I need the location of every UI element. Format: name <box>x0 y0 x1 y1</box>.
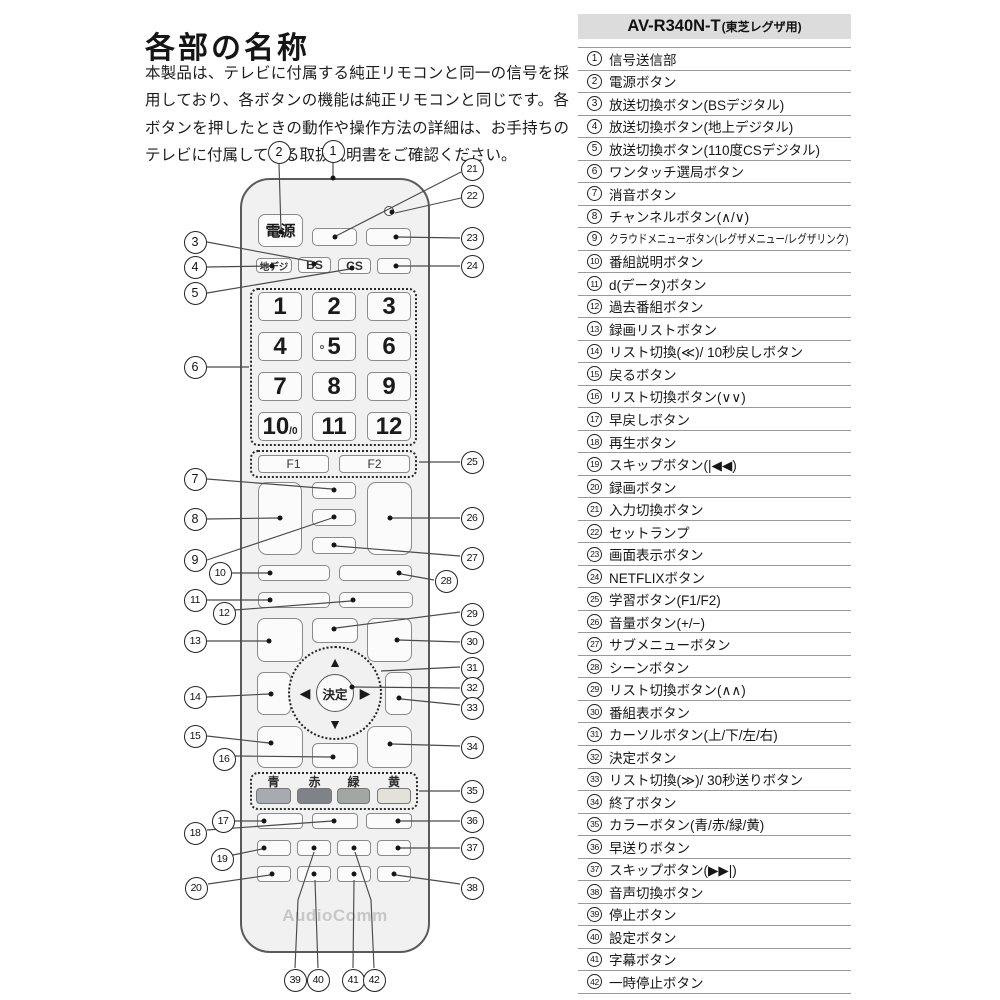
digit-button-12: 12 <box>367 412 411 441</box>
callout-9: 9 <box>184 549 207 572</box>
part-number: 38 <box>587 884 602 899</box>
skip-forward-button <box>377 840 411 856</box>
parts-table-row: 21入力切換ボタン <box>578 498 851 521</box>
digit-button-1: 1 <box>258 292 302 321</box>
recorded-list-button <box>257 618 303 662</box>
audio-switch-button <box>377 866 411 882</box>
screen-display-button <box>366 228 411 246</box>
part-label: 消音ボタン <box>609 184 677 204</box>
callout-15: 15 <box>184 725 207 748</box>
part-label: 早戻しボタン <box>609 409 690 429</box>
part-label: サブメニューボタン <box>609 634 731 654</box>
callout-25: 25 <box>461 451 484 474</box>
cs-button-label: CS <box>346 259 363 273</box>
part-label: 字幕ボタン <box>609 949 677 969</box>
exit-button <box>367 726 412 768</box>
parts-table-row: 36早送りボタン <box>578 836 851 859</box>
color-button <box>377 788 411 804</box>
part-number: 22 <box>587 524 602 539</box>
part-label: 戻るボタン <box>609 364 677 384</box>
parts-table-row: 8チャンネルボタン(∧/∨) <box>578 206 851 229</box>
part-number: 31 <box>587 727 602 742</box>
rewind-button <box>257 813 303 829</box>
part-label: カラーボタン(青/赤/緑/黄) <box>609 814 764 834</box>
digit-label: 12 <box>376 413 403 441</box>
callout-7: 7 <box>184 468 207 491</box>
cursor-left-icon: ◀ <box>297 685 313 701</box>
skip-back-button <box>257 840 291 856</box>
callout-18: 18 <box>184 822 207 845</box>
part-number: 25 <box>587 592 602 607</box>
digit-button-4: 4 <box>258 332 302 361</box>
tactile-dot <box>320 345 324 349</box>
parts-table-header: AV-R340N-T (東芝レグザ用) <box>578 14 851 39</box>
part-number: 26 <box>587 614 602 629</box>
callout-37: 37 <box>461 837 484 860</box>
digit-button-5: 5 <box>312 332 356 361</box>
part-number: 29 <box>587 682 602 697</box>
part-number: 28 <box>587 659 602 674</box>
callout-10: 10 <box>209 562 232 585</box>
settings-button <box>297 866 331 882</box>
part-label: NETFLIXボタン <box>609 567 705 587</box>
callout-28: 28 <box>435 570 458 593</box>
part-label: 再生ボタン <box>609 432 677 452</box>
part-number: 1 <box>587 51 602 66</box>
parts-table: 1信号送信部2電源ボタン3放送切換ボタン(BSデジタル)4放送切換ボタン(地上デ… <box>578 47 851 994</box>
part-label: 入力切換ボタン <box>609 499 704 519</box>
list-switch-down-button <box>312 743 358 768</box>
callout-27: 27 <box>461 547 484 570</box>
part-label: 音声切換ボタン <box>609 882 704 902</box>
intro-text: 本製品は、テレビに付属する純正リモコンと同一の信号を採用しており、各ボタンの機能… <box>145 60 569 170</box>
digit-label: 11 <box>321 413 346 441</box>
digit-label: 3 <box>382 293 395 321</box>
ok-button: 決定 <box>316 674 354 712</box>
callout-6: 6 <box>184 356 207 379</box>
part-number: 30 <box>587 704 602 719</box>
part-number: 6 <box>587 164 602 179</box>
part-number: 41 <box>587 952 602 967</box>
part-number: 36 <box>587 839 602 854</box>
callout-38: 38 <box>461 877 484 900</box>
parts-table-row: 7消音ボタン <box>578 183 851 206</box>
part-label: d(データ)ボタン <box>609 274 707 294</box>
f1-button-label: F1 <box>286 457 300 471</box>
part-label: 設定ボタン <box>609 927 677 947</box>
digit-label: 10 <box>262 413 289 441</box>
parts-table-row: 19スキップボタン(|◀◀) <box>578 453 851 476</box>
f2-button-label: F2 <box>367 457 381 471</box>
part-label: 音量ボタン(+/−) <box>609 612 705 632</box>
submenu-button <box>312 537 356 554</box>
part-number: 3 <box>587 96 602 111</box>
parts-table-row: 24NETFLIXボタン <box>578 566 851 589</box>
part-label: 決定ボタン <box>609 747 677 767</box>
input-switch-button <box>312 228 357 246</box>
parts-table-row: 35カラーボタン(青/赤/緑/黄) <box>578 814 851 837</box>
callout-36: 36 <box>461 810 484 833</box>
channel-rocker <box>258 482 302 555</box>
parts-table-row: 10番組説明ボタン <box>578 251 851 274</box>
parts-table-row: 4放送切換ボタン(地上デジタル) <box>578 116 851 139</box>
parts-table-row: 2電源ボタン <box>578 71 851 94</box>
part-label: 番組説明ボタン <box>609 251 704 271</box>
parts-table-row: 39停止ボタン <box>578 904 851 927</box>
parts-table-row: 1信号送信部 <box>578 48 851 71</box>
parts-table-row: 16リスト切換ボタン(∨∨) <box>578 386 851 409</box>
fast-forward-button <box>366 813 412 829</box>
part-number: 10 <box>587 254 602 269</box>
set-lamp-icon <box>384 206 394 216</box>
list-switch-up-button <box>312 618 358 643</box>
cursor-right-icon: ▶ <box>357 685 373 701</box>
callout-14: 14 <box>184 686 207 709</box>
f1-button: F1 <box>258 455 329 473</box>
model-number: AV-R340N-T <box>627 17 720 36</box>
callout-26: 26 <box>461 507 484 530</box>
callout-13: 13 <box>184 630 207 653</box>
digit-label: 2 <box>327 293 340 321</box>
parts-table-row: 14リスト切換(≪)/ 10秒戻しボタン <box>578 341 851 364</box>
parts-table-row: 28シーンボタン <box>578 656 851 679</box>
callout-34: 34 <box>461 736 484 759</box>
scene-button <box>339 565 412 581</box>
part-label: 放送切換ボタン(110度CSデジタル) <box>609 139 820 159</box>
callout-2: 2 <box>268 141 291 164</box>
mute-button <box>312 482 356 499</box>
callout-8: 8 <box>184 508 207 531</box>
model-suffix: (東芝レグザ用) <box>722 18 802 35</box>
part-number: 18 <box>587 434 602 449</box>
part-label: クラウドメニューボタン(レグザメニュー/レグザリンク) <box>609 230 848 247</box>
callout-22: 22 <box>461 185 484 208</box>
callout-42: 42 <box>363 969 386 992</box>
parts-table-row: 32決定ボタン <box>578 746 851 769</box>
digit-label: 5 <box>327 333 340 361</box>
digit-button-2: 2 <box>312 292 356 321</box>
part-number: 35 <box>587 817 602 832</box>
part-label: 学習ボタン(F1/F2) <box>609 589 721 609</box>
parts-table-row: 40設定ボタン <box>578 926 851 949</box>
part-number: 42 <box>587 974 602 989</box>
cloud-menu-button <box>312 509 356 526</box>
part-number: 15 <box>587 366 602 381</box>
part-number: 13 <box>587 321 602 336</box>
parts-table-row: 23画面表示ボタン <box>578 543 851 566</box>
parts-table-row: 15戻るボタン <box>578 363 851 386</box>
callout-35: 35 <box>461 780 484 803</box>
callout-20: 20 <box>185 877 208 900</box>
parts-table-row: 26音量ボタン(+/−) <box>578 611 851 634</box>
program-info-button <box>258 565 330 581</box>
digit-button-6: 6 <box>367 332 411 361</box>
part-label: リスト切換(≫)/ 30秒送りボタン <box>609 769 803 789</box>
callout-21: 21 <box>461 158 484 181</box>
part-label: 放送切換ボタン(BSデジタル) <box>609 94 784 114</box>
part-label: 録画リストボタン <box>609 319 717 339</box>
part-number: 27 <box>587 637 602 652</box>
stop-button <box>297 840 331 856</box>
callout-33: 33 <box>461 697 484 720</box>
callout-4: 4 <box>184 256 207 279</box>
part-label: シーンボタン <box>609 657 689 677</box>
part-label: ワンタッチ選局ボタン <box>609 161 744 181</box>
part-number: 19 <box>587 457 602 472</box>
digit-10-suffix: /0 <box>289 426 297 437</box>
callout-19: 19 <box>211 848 234 871</box>
part-number: 12 <box>587 299 602 314</box>
part-number: 32 <box>587 749 602 764</box>
callout-40: 40 <box>307 969 330 992</box>
parts-table-row: 11d(データ)ボタン <box>578 273 851 296</box>
part-number: 4 <box>587 119 602 134</box>
parts-table-row: 30番組表ボタン <box>578 701 851 724</box>
parts-table-row: 27サブメニューボタン <box>578 633 851 656</box>
terrestrial-digital-label: 地デジ <box>260 259 289 273</box>
part-number: 8 <box>587 209 602 224</box>
digit-button-11: 11 <box>312 412 356 441</box>
manual-page: 各部の名称 本製品は、テレビに付属する純正リモコンと同一の信号を採用しており、各… <box>0 0 1000 1000</box>
parts-table-row: 37スキップボタン(▶▶|) <box>578 859 851 882</box>
parts-table-row: 18再生ボタン <box>578 431 851 454</box>
cursor-down-icon: ▼ <box>327 716 343 732</box>
part-label: 停止ボタン <box>609 904 677 924</box>
part-label: 信号送信部 <box>609 49 677 69</box>
parts-table-row: 5放送切換ボタン(110度CSデジタル) <box>578 138 851 161</box>
d-data-button <box>258 592 330 608</box>
callout-1: 1 <box>322 140 345 163</box>
part-number: 37 <box>587 862 602 877</box>
parts-table-row: 6ワンタッチ選局ボタン <box>578 161 851 184</box>
part-number: 16 <box>587 389 602 404</box>
parts-table-row: 12過去番組ボタン <box>578 296 851 319</box>
part-number: 20 <box>587 479 602 494</box>
back-button <box>257 726 303 768</box>
digit-label: 7 <box>273 373 286 401</box>
part-number: 24 <box>587 569 602 584</box>
callout-5: 5 <box>184 282 207 305</box>
part-number: 21 <box>587 502 602 517</box>
terrestrial-digital-button: 地デジ <box>256 258 292 273</box>
part-label: スキップボタン(▶▶|) <box>609 859 737 879</box>
part-number: 9 <box>587 231 602 246</box>
callout-11: 11 <box>184 589 207 612</box>
part-label: 終了ボタン <box>609 792 677 812</box>
play-button <box>312 813 358 829</box>
digit-label: 1 <box>273 293 286 321</box>
parts-table-row: 38音声切換ボタン <box>578 881 851 904</box>
cursor-up-icon: ▲ <box>327 654 343 670</box>
bs-button: BS <box>298 257 331 273</box>
part-label: 放送切換ボタン(地上デジタル) <box>609 116 793 136</box>
part-number: 34 <box>587 794 602 809</box>
digit-label: 4 <box>273 333 286 361</box>
parts-table-row: 25学習ボタン(F1/F2) <box>578 588 851 611</box>
cs-button: CS <box>338 258 371 274</box>
callout-30: 30 <box>461 631 484 654</box>
part-number: 40 <box>587 929 602 944</box>
record-button <box>257 866 291 882</box>
part-label: 番組表ボタン <box>609 702 690 722</box>
color-button <box>337 788 370 804</box>
part-number: 14 <box>587 344 602 359</box>
part-number: 11 <box>587 276 602 291</box>
part-number: 17 <box>587 412 602 427</box>
callout-17: 17 <box>212 810 235 833</box>
f2-button: F2 <box>339 455 410 473</box>
part-label: 早送りボタン <box>609 837 690 857</box>
parts-table-row: 29リスト切換ボタン(∧∧) <box>578 678 851 701</box>
part-label: 録画ボタン <box>609 477 677 497</box>
power-button-label: 電源 <box>265 220 295 241</box>
subtitle-button <box>337 866 371 882</box>
digit-button-9: 9 <box>367 372 411 401</box>
digit-button-7: 7 <box>258 372 302 401</box>
callout-29: 29 <box>461 603 484 626</box>
brand-logo: AudioComm <box>262 906 408 926</box>
parts-table-row: 33リスト切換(≫)/ 30秒送りボタン <box>578 769 851 792</box>
parts-table-row: 34終了ボタン <box>578 791 851 814</box>
digit-button-10: 10/0 <box>258 412 302 441</box>
list-switch-back-10s-button <box>257 672 291 715</box>
part-label: リスト切換ボタン(∨∨) <box>609 386 746 406</box>
parts-table-row: 3放送切換ボタン(BSデジタル) <box>578 93 851 116</box>
volume-rocker <box>367 482 412 555</box>
part-label: スキップボタン(|◀◀) <box>609 454 737 474</box>
digit-label: 8 <box>327 373 340 401</box>
part-label: リスト切換(≪)/ 10秒戻しボタン <box>609 341 803 361</box>
digit-button-8: 8 <box>312 372 356 401</box>
parts-table-row: 31カーソルボタン(上/下/左/右) <box>578 723 851 746</box>
part-label: リスト切換ボタン(∧∧) <box>609 679 746 699</box>
part-number: 33 <box>587 772 602 787</box>
callout-12: 12 <box>213 602 236 625</box>
callout-24: 24 <box>461 255 484 278</box>
past-programs-button <box>339 592 413 608</box>
part-number: 23 <box>587 547 602 562</box>
list-switch-fwd-30s-button <box>385 672 412 715</box>
callout-39: 39 <box>284 969 307 992</box>
part-number: 7 <box>587 186 602 201</box>
part-label: カーソルボタン(上/下/左/右) <box>609 724 778 744</box>
callout-23: 23 <box>461 227 484 250</box>
part-label: 過去番組ボタン <box>609 296 704 316</box>
parts-table-row: 13録画リストボタン <box>578 318 851 341</box>
netflix-button <box>377 258 411 274</box>
color-button <box>297 788 332 804</box>
parts-table-row: 22セットランプ <box>578 521 851 544</box>
part-number: 5 <box>587 141 602 156</box>
parts-table-row: 42一時停止ボタン <box>578 971 851 994</box>
parts-table-row: 41字幕ボタン <box>578 949 851 972</box>
part-label: 画面表示ボタン <box>609 544 704 564</box>
part-label: 電源ボタン <box>609 71 677 91</box>
color-button <box>256 788 291 804</box>
digit-label: 6 <box>382 333 395 361</box>
program-guide-button <box>367 618 412 662</box>
digit-label: 9 <box>382 373 395 401</box>
part-label: 一時停止ボタン <box>609 972 704 992</box>
callout-41: 41 <box>342 969 365 992</box>
part-label: チャンネルボタン(∧/∨) <box>609 206 749 226</box>
bs-button-label: BS <box>306 258 323 272</box>
part-number: 39 <box>587 907 602 922</box>
callout-3: 3 <box>184 231 207 254</box>
power-button: 電源 <box>258 214 303 247</box>
part-label: セットランプ <box>609 522 690 542</box>
parts-table-row: 9クラウドメニューボタン(レグザメニュー/レグザリンク) <box>578 228 851 251</box>
parts-table-row: 20録画ボタン <box>578 476 851 499</box>
parts-table-row: 17早戻しボタン <box>578 408 851 431</box>
ok-button-label: 決定 <box>322 684 347 703</box>
callout-16: 16 <box>213 748 236 771</box>
pause-button <box>337 840 371 856</box>
digit-button-3: 3 <box>367 292 411 321</box>
part-number: 2 <box>587 74 602 89</box>
